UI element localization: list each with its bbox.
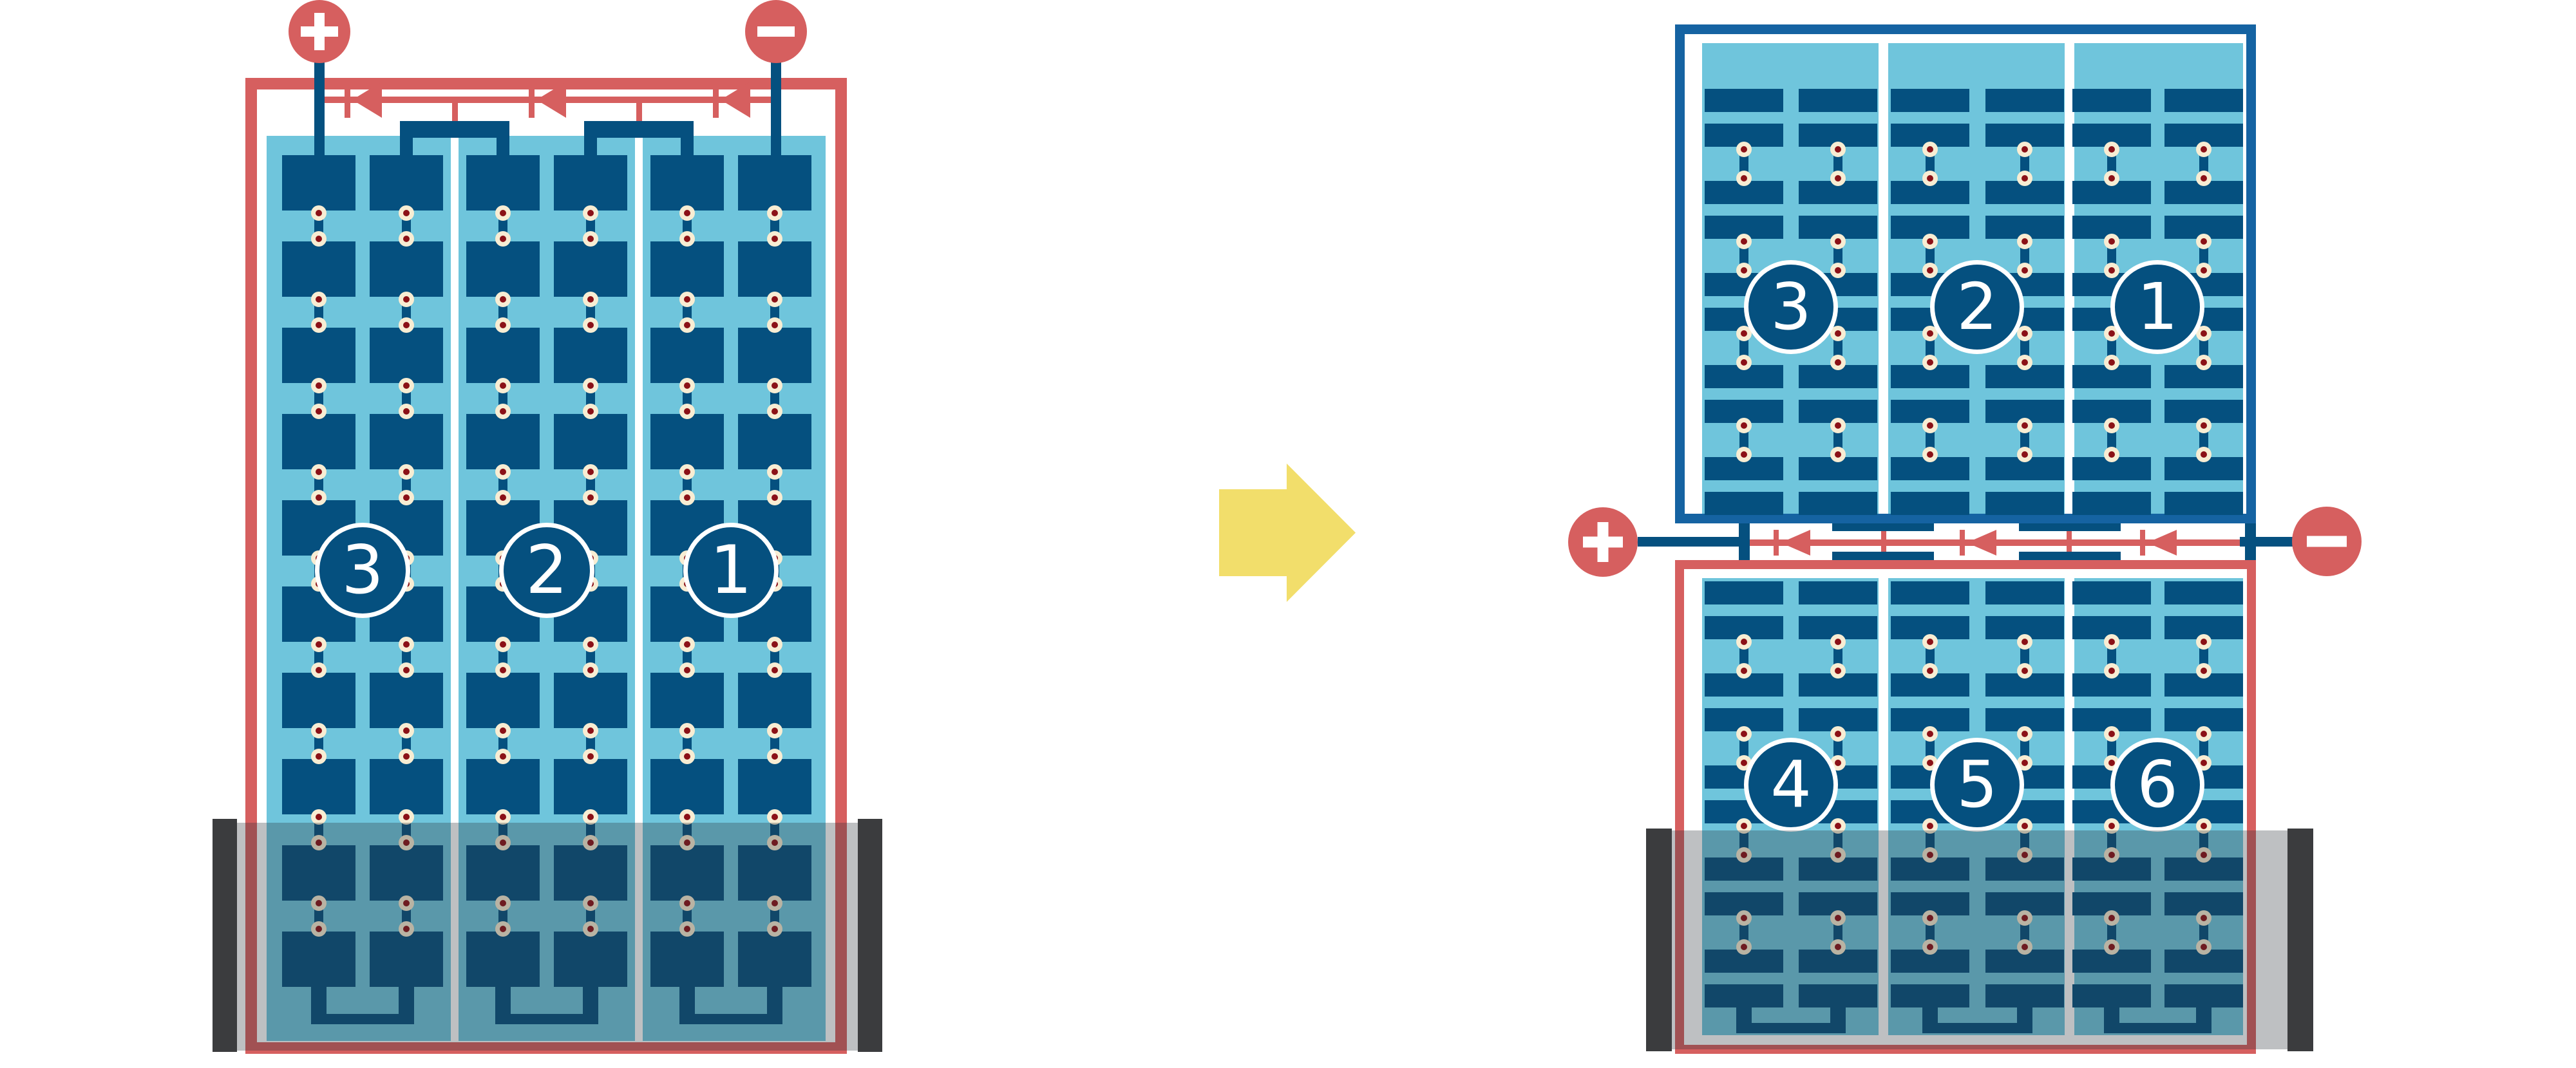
solder-dot-icon: [311, 317, 327, 333]
solder-dot-icon: [495, 749, 511, 764]
solder-dot-core: [500, 641, 506, 648]
solar-cell: [554, 241, 627, 297]
half-cell: [1985, 89, 2064, 112]
solder-dot-icon: [311, 490, 327, 505]
solder-dot-icon: [1922, 418, 1938, 433]
solder-dot-icon: [583, 317, 598, 333]
solder-dot-core: [316, 494, 322, 501]
solder-dot-icon: [679, 749, 695, 764]
solder-dot-core: [2108, 668, 2115, 674]
junction-busbar-tab: [2019, 552, 2121, 560]
solder-dot-core: [2022, 668, 2028, 674]
string-badge-label: 1: [2137, 275, 2178, 339]
solder-dot-core: [684, 753, 690, 760]
solder-dot-core: [1835, 146, 1841, 153]
solder-dot-core: [1835, 823, 1841, 829]
solder-dot-icon: [679, 205, 695, 221]
solar-cell: [282, 328, 355, 383]
solder-dot-icon: [311, 205, 327, 221]
solder-dot-icon: [2017, 634, 2032, 650]
solder-dot-core: [1835, 451, 1841, 458]
solder-dot-core: [772, 494, 778, 501]
solder-dot-icon: [1922, 142, 1938, 157]
solar-cell: [738, 673, 811, 728]
solder-dot-icon: [495, 292, 511, 307]
bypass-diode-icon: [529, 82, 566, 118]
solder-dot-icon: [767, 749, 782, 764]
solder-dot-core: [2201, 267, 2207, 274]
solder-dot-icon: [1830, 171, 1846, 186]
solder-dot-core: [1835, 760, 1841, 766]
solder-dot-core: [772, 814, 778, 820]
solder-dot-icon: [583, 378, 598, 393]
solder-dot-icon: [495, 662, 511, 678]
half-cell: [2072, 492, 2151, 515]
half-cell: [2072, 581, 2151, 604]
solder-dot-icon: [1736, 726, 1752, 742]
solder-dot-icon: [679, 378, 695, 393]
solder-dot-core: [2108, 146, 2115, 153]
solder-dot-icon: [583, 662, 598, 678]
half-cell: [1705, 89, 1783, 112]
string-badge-label: 6: [2137, 753, 2178, 817]
solder-dot-icon: [1830, 234, 1846, 249]
solder-dot-icon: [583, 205, 598, 221]
solder-dot-core: [1741, 668, 1747, 674]
solder-dot-icon: [2017, 663, 2032, 679]
solder-dot-core: [403, 210, 410, 216]
solder-dot-core: [772, 469, 778, 475]
solder-dot-icon: [2017, 142, 2032, 157]
positive-terminal: [1568, 507, 1638, 577]
solder-dot-icon: [2196, 171, 2211, 186]
solder-dot-core: [1927, 422, 1933, 429]
solder-dot-icon: [2104, 418, 2119, 433]
solder-dot-icon: [2196, 418, 2211, 433]
solder-dot-icon: [679, 464, 695, 480]
solder-dot-core: [403, 494, 410, 501]
solder-dot-core: [2108, 639, 2115, 645]
solder-dot-icon: [311, 464, 327, 480]
solder-dot-icon: [311, 378, 327, 393]
solder-dot-core: [684, 382, 690, 389]
solder-dot-icon: [495, 723, 511, 738]
bypass-diode-icon: [1960, 530, 1996, 556]
solder-dot-icon: [1922, 447, 1938, 462]
solar-cell: [370, 155, 443, 211]
solder-dot-core: [2201, 731, 2207, 737]
solder-dot-icon: [767, 662, 782, 678]
string-bridge: [400, 121, 509, 138]
string-bridge: [497, 121, 509, 162]
solder-dot-core: [316, 408, 322, 415]
solder-dot-core: [684, 322, 690, 328]
solder-dot-icon: [583, 292, 598, 307]
solder-dot-icon: [1736, 263, 1752, 278]
solar-cell: [738, 759, 811, 814]
junction-busbar-tab: [1832, 523, 1934, 531]
solder-dot-core: [2022, 760, 2028, 766]
solar-cell: [466, 414, 540, 469]
solder-dot-core: [403, 727, 410, 734]
solder-dot-icon: [583, 404, 598, 419]
solder-dot-core: [500, 322, 506, 328]
solder-dot-icon: [2017, 726, 2032, 742]
solder-dot-core: [772, 382, 778, 389]
negative-terminal: [2292, 507, 2362, 576]
half-cell: [1799, 581, 1877, 604]
solder-dot-icon: [311, 662, 327, 678]
solder-dot-core: [684, 814, 690, 820]
solder-dot-core: [1927, 823, 1933, 829]
solar-cell: [554, 328, 627, 383]
solder-dot-core: [772, 753, 778, 760]
string-badge-label: 5: [1956, 753, 1998, 817]
solder-dot-core: [1927, 175, 1933, 182]
solder-dot-core: [587, 210, 594, 216]
bypass-diode-icon: [713, 82, 750, 118]
solar-cell: [282, 673, 355, 728]
solder-dot-icon: [1736, 447, 1752, 462]
solder-dot-core: [403, 236, 410, 242]
solder-dot-core: [1741, 267, 1747, 274]
solder-dot-icon: [1736, 418, 1752, 433]
solder-dot-core: [403, 469, 410, 475]
solder-dot-icon: [679, 317, 695, 333]
solder-dot-icon: [495, 231, 511, 247]
solder-dot-core: [2201, 175, 2207, 182]
solar-cell: [554, 414, 627, 469]
solder-dot-icon: [399, 404, 414, 419]
solder-dot-icon: [399, 231, 414, 247]
solder-dot-core: [500, 494, 506, 501]
solder-dot-icon: [1922, 234, 1938, 249]
solder-dot-core: [1927, 731, 1933, 737]
solder-dot-core: [587, 296, 594, 303]
solar-cell: [370, 328, 443, 383]
solder-dot-icon: [1736, 663, 1752, 679]
solder-dot-core: [772, 210, 778, 216]
solder-dot-core: [684, 408, 690, 415]
junction-busbar-tab: [1832, 552, 1934, 560]
solder-dot-core: [403, 814, 410, 820]
solder-dot-icon: [1922, 263, 1938, 278]
solder-dot-core: [587, 322, 594, 328]
solar-cell: [554, 759, 627, 814]
string-bridge: [681, 121, 694, 162]
solder-dot-core: [684, 727, 690, 734]
solder-dot-core: [1741, 175, 1747, 182]
solder-dot-core: [500, 469, 506, 475]
solar-cell: [370, 673, 443, 728]
solder-dot-icon: [767, 723, 782, 738]
solder-dot-icon: [311, 231, 327, 247]
solder-dot-icon: [495, 490, 511, 505]
solder-dot-icon: [767, 404, 782, 419]
solder-dot-icon: [2196, 142, 2211, 157]
solar-cell: [282, 414, 355, 469]
solder-dot-icon: [1830, 355, 1846, 370]
solder-dot-core: [2108, 823, 2115, 829]
solder-dot-icon: [2104, 263, 2119, 278]
solder-dot-icon: [1830, 447, 1846, 462]
solder-dot-core: [587, 469, 594, 475]
minus-icon: [757, 26, 795, 37]
half-cell: [1705, 492, 1783, 515]
solder-dot-core: [403, 641, 410, 648]
solder-dot-core: [316, 641, 322, 648]
solar-cell: [650, 328, 724, 383]
solder-dot-icon: [2104, 171, 2119, 186]
bypass-diode-icon: [2140, 530, 2177, 556]
solder-dot-core: [403, 296, 410, 303]
solar-cell: [466, 328, 540, 383]
solder-dot-icon: [1922, 634, 1938, 650]
solder-dot-icon: [767, 490, 782, 505]
solder-dot-core: [587, 814, 594, 820]
solder-dot-core: [772, 296, 778, 303]
solder-dot-icon: [1736, 634, 1752, 650]
solder-dot-icon: [767, 292, 782, 307]
solder-dot-icon: [583, 749, 598, 764]
solar-cell: [282, 759, 355, 814]
solder-dot-core: [403, 322, 410, 328]
solder-dot-core: [316, 727, 322, 734]
solder-dot-icon: [2196, 726, 2211, 742]
solder-dot-icon: [311, 292, 327, 307]
solar-cell: [370, 241, 443, 297]
solder-dot-core: [500, 382, 506, 389]
string-badge-5: 5: [1930, 738, 2024, 832]
solder-dot-core: [500, 236, 506, 242]
solder-dot-icon: [311, 637, 327, 652]
solder-dot-icon: [399, 490, 414, 505]
solder-dot-icon: [767, 464, 782, 480]
solder-dot-core: [587, 236, 594, 242]
solder-dot-core: [500, 210, 506, 216]
diode-bus-tap: [1881, 529, 1886, 554]
solder-dot-core: [1927, 267, 1933, 274]
solder-dot-icon: [583, 231, 598, 247]
solder-dot-core: [1835, 359, 1841, 366]
minus-icon: [2307, 536, 2347, 547]
solar-cell: [282, 241, 355, 297]
solder-dot-core: [2108, 451, 2115, 458]
solder-dot-core: [587, 494, 594, 501]
solder-dot-icon: [1922, 171, 1938, 186]
positive-terminal: [289, 0, 350, 63]
solar-cell: [466, 673, 540, 728]
solder-dot-icon: [679, 637, 695, 652]
solder-dot-core: [2201, 330, 2207, 337]
solder-dot-core: [1835, 668, 1841, 674]
solder-dot-core: [2201, 760, 2207, 766]
solder-dot-icon: [311, 723, 327, 738]
solar-cell: [650, 759, 724, 814]
solder-dot-icon: [2017, 418, 2032, 433]
plus-icon: [314, 13, 325, 50]
solder-dot-core: [684, 494, 690, 501]
solder-dot-core: [2201, 422, 2207, 429]
solder-dot-core: [316, 667, 322, 673]
plus-icon: [1598, 522, 1609, 562]
solder-dot-core: [2022, 359, 2028, 366]
solder-dot-icon: [495, 464, 511, 480]
solder-dot-icon: [495, 205, 511, 221]
solder-dot-icon: [679, 231, 695, 247]
solder-dot-core: [500, 727, 506, 734]
string-badge-2: 2: [499, 523, 594, 618]
solder-dot-icon: [679, 662, 695, 678]
solder-dot-core: [1741, 823, 1747, 829]
solder-dot-icon: [399, 205, 414, 221]
solder-dot-core: [772, 408, 778, 415]
solder-dot-core: [684, 210, 690, 216]
solder-dot-core: [1741, 451, 1747, 458]
bypass-diode-icon: [345, 82, 382, 118]
solder-dot-core: [1927, 330, 1933, 337]
solar-cell: [370, 414, 443, 469]
string-gap: [1879, 43, 1888, 514]
solar-cell: [650, 673, 724, 728]
solder-dot-icon: [767, 231, 782, 247]
string-badge-1: 1: [683, 523, 779, 618]
solder-dot-core: [2108, 731, 2115, 737]
solder-dot-icon: [583, 637, 598, 652]
solder-dot-icon: [2017, 263, 2032, 278]
positive-lead-wire: [314, 57, 325, 165]
solder-dot-icon: [1830, 418, 1846, 433]
string-badge-label: 3: [341, 538, 384, 604]
solder-dot-core: [587, 641, 594, 648]
solder-dot-icon: [2196, 634, 2211, 650]
solder-dot-core: [500, 753, 506, 760]
shadow-band: [1646, 830, 2313, 1049]
solder-dot-core: [1927, 639, 1933, 645]
solder-dot-core: [1835, 267, 1841, 274]
solder-dot-icon: [767, 317, 782, 333]
solder-dot-icon: [2017, 326, 2032, 341]
solder-dot-core: [684, 236, 690, 242]
solder-dot-icon: [1830, 263, 1846, 278]
solder-dot-icon: [399, 662, 414, 678]
solder-dot-core: [403, 667, 410, 673]
solder-dot-icon: [1830, 142, 1846, 157]
solder-dot-core: [1741, 146, 1747, 153]
solder-dot-core: [587, 667, 594, 673]
solder-dot-core: [403, 408, 410, 415]
solder-dot-core: [1927, 451, 1933, 458]
transition-arrow-icon: [1219, 464, 1356, 602]
half-cell: [1891, 89, 1969, 112]
solder-dot-icon: [399, 749, 414, 764]
negative-lead-wire: [771, 57, 781, 165]
solder-dot-core: [684, 469, 690, 475]
string-badge-2: 2: [1930, 260, 2024, 354]
solder-dot-icon: [679, 723, 695, 738]
solar-cell: [370, 759, 443, 814]
solder-dot-core: [2022, 175, 2028, 182]
solder-dot-core: [403, 382, 410, 389]
solder-dot-icon: [1922, 355, 1938, 370]
half-cell: [1705, 581, 1783, 604]
solder-dot-icon: [767, 637, 782, 652]
solder-dot-core: [2022, 267, 2028, 274]
solder-dot-core: [1835, 731, 1841, 737]
solder-dot-core: [2022, 823, 2028, 829]
half-cell: [1891, 581, 1969, 604]
solar-cell: [650, 414, 724, 469]
solder-dot-core: [2022, 238, 2028, 245]
solder-dot-core: [316, 296, 322, 303]
half-cell: [1799, 89, 1877, 112]
junction-busbar-tab: [2019, 523, 2121, 531]
half-cell: [2072, 89, 2151, 112]
solder-dot-core: [1927, 760, 1933, 766]
solder-dot-core: [316, 382, 322, 389]
solar-cell: [738, 328, 811, 383]
solder-dot-core: [2108, 330, 2115, 337]
solder-dot-core: [2022, 731, 2028, 737]
solder-dot-core: [772, 322, 778, 328]
solder-dot-core: [316, 236, 322, 242]
solder-dot-core: [2108, 359, 2115, 366]
solder-dot-icon: [679, 292, 695, 307]
solder-dot-icon: [311, 404, 327, 419]
solder-dot-icon: [2104, 234, 2119, 249]
negative-lead-wire: [2240, 537, 2293, 547]
solder-dot-icon: [495, 404, 511, 419]
solder-dot-icon: [495, 317, 511, 333]
solder-dot-icon: [2104, 355, 2119, 370]
solder-dot-icon: [2017, 171, 2032, 186]
solder-dot-icon: [2196, 447, 2211, 462]
diode-bus-tap: [2067, 529, 2072, 554]
solar-cell: [466, 759, 540, 814]
solder-dot-core: [1927, 668, 1933, 674]
string-badge-6: 6: [2110, 738, 2204, 832]
solder-dot-icon: [1830, 726, 1846, 742]
solder-dot-core: [2201, 668, 2207, 674]
solder-dot-core: [2201, 823, 2207, 829]
solder-dot-icon: [311, 749, 327, 764]
positive-lead-wire: [1638, 537, 1747, 547]
solder-dot-core: [684, 667, 690, 673]
string-badge-label: 3: [1770, 275, 1812, 339]
solder-dot-icon: [1736, 171, 1752, 186]
string-bridge: [584, 121, 597, 162]
solder-dot-core: [2201, 146, 2207, 153]
solder-dot-icon: [2104, 447, 2119, 462]
solder-dot-core: [1835, 175, 1841, 182]
solder-dot-core: [500, 814, 506, 820]
solder-dot-icon: [1736, 355, 1752, 370]
solder-dot-core: [2022, 146, 2028, 153]
shadow-band: [213, 823, 882, 1051]
solder-dot-icon: [2196, 234, 2211, 249]
solder-dot-core: [587, 382, 594, 389]
solder-dot-core: [1741, 760, 1747, 766]
solder-dot-icon: [399, 637, 414, 652]
solder-dot-core: [2022, 451, 2028, 458]
solder-dot-core: [316, 753, 322, 760]
solder-dot-icon: [495, 637, 511, 652]
solder-dot-core: [684, 641, 690, 648]
solder-dot-icon: [767, 205, 782, 221]
solder-dot-core: [1741, 422, 1747, 429]
string-badge-3: 3: [1744, 260, 1838, 354]
string-badge-3: 3: [315, 523, 410, 618]
